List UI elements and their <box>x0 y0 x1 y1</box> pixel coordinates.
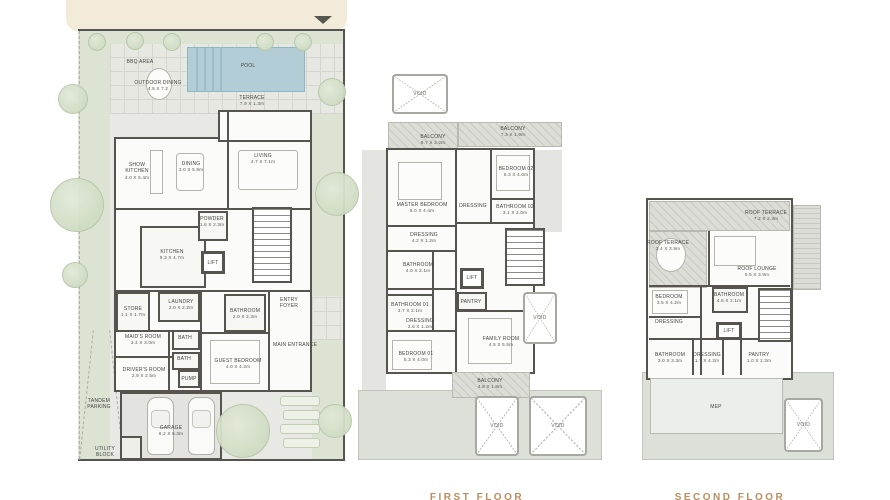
room-label: BATHROOM 013.7 X 2.1m <box>391 302 429 314</box>
tree <box>88 33 106 51</box>
room-label: GUEST BEDROOM4.0 X 4.2m <box>215 358 262 370</box>
room-label: UTILITY BLOCK <box>95 446 115 459</box>
tree <box>318 404 352 438</box>
room-label: PUMP <box>181 376 196 382</box>
pool-steps <box>196 48 222 91</box>
room-label: BATHROOM4.5 X 2.1m <box>714 292 744 304</box>
room-label: POOL <box>241 63 256 69</box>
room-label: LAUNDRY2.0 X 2.2m <box>168 299 193 311</box>
room-label: LIFT <box>723 328 734 334</box>
floor-plans-canvas: BBQ AREA OUTDOOR DINING4.5 X 7.2 POOL TE… <box>0 0 890 500</box>
room-label: BATH <box>178 335 192 341</box>
room-label: DRIVER'S ROOM2.9 X 2.5m <box>123 367 166 379</box>
room-label: FAMILY ROOM4.5 X 5.5m <box>483 336 519 348</box>
wall <box>388 294 434 296</box>
room-label: POWDER1.6 X 2.3m <box>200 216 224 228</box>
hedge <box>280 396 320 406</box>
wall <box>168 330 170 390</box>
wall <box>490 150 492 222</box>
tree <box>58 84 88 114</box>
wall <box>202 332 268 334</box>
side-slab-right <box>535 150 562 232</box>
void-box: VOID <box>523 292 557 344</box>
room-label: BALCONY6.7 X 3.2m <box>420 134 445 146</box>
void-box: VOID <box>392 74 448 114</box>
second-floor-caption: SECOND FLOOR <box>675 492 786 500</box>
void-label: VOID <box>490 423 503 429</box>
room-label: ROOF LOUNGE5.5 X 3.9m <box>737 266 776 278</box>
tree <box>216 404 270 458</box>
room-label: BALCONY7.3 X 1.9m <box>500 126 525 138</box>
room-label: BATHROOM2.0 X 2.3m <box>230 308 260 320</box>
void-label: VOID <box>797 422 810 428</box>
wall <box>388 288 456 290</box>
staircase <box>505 228 545 286</box>
tree <box>126 32 144 50</box>
room-label: DINING3.0 X 5.9m <box>179 161 203 173</box>
room-label: BATH <box>177 356 191 362</box>
room-label: TANDEM PARKING <box>87 398 111 411</box>
room-label: TERRACE7.9 X 1.3m <box>239 95 264 107</box>
pool <box>187 47 305 92</box>
wall <box>722 340 724 375</box>
room-label: PANTRY1.0 X 2.3m <box>747 352 771 364</box>
wall <box>388 225 456 227</box>
room-label: MEP <box>710 404 721 410</box>
room-label: OUTDOOR DINING4.5 X 7.2 <box>134 80 181 92</box>
wall <box>388 330 456 332</box>
tree <box>315 172 359 216</box>
tree <box>163 33 181 51</box>
plot-boundary-top <box>78 29 345 31</box>
wall <box>388 250 456 252</box>
void-box: VOID <box>475 396 519 456</box>
room-label: DRESSING <box>655 319 683 325</box>
balcony-right-strip <box>793 205 821 290</box>
living-wing <box>218 110 312 142</box>
void-label: VOID <box>551 423 564 429</box>
wall <box>649 316 700 318</box>
room-label: MAID'S ROOM3.4 X 3.0m <box>125 334 161 346</box>
room-label: MAIN ENTRANCE <box>273 342 317 348</box>
void-label: VOID <box>533 315 546 321</box>
staircase <box>252 207 292 283</box>
void-box: VOID <box>784 398 823 452</box>
room-label: DRESSING1.7 X 4.2m <box>693 352 721 364</box>
room-label: BATHROOM 023.1 X 2.0m <box>496 204 534 216</box>
staircase <box>758 288 792 342</box>
wall <box>457 222 535 224</box>
kitchen-island <box>150 150 163 194</box>
room-label: SHOW KITCHEN4.0 X 5.4m <box>125 162 149 180</box>
wall <box>492 198 535 200</box>
roof-lounge-sofa <box>714 236 756 266</box>
room-label: PANTRY <box>460 299 481 305</box>
room-label: STORE1.1 X 1.7m <box>121 306 145 318</box>
room-label: BEDROOM 025.3 X 4.0m <box>499 166 534 178</box>
room-label: LIVING4.7 X 7.1m <box>251 153 275 165</box>
tree <box>294 33 312 51</box>
wall <box>200 292 202 390</box>
room-label: LIFT <box>207 260 218 266</box>
room-label: KITCHEN5.3 X 4.7m <box>160 249 184 261</box>
site-header-band <box>66 0 347 31</box>
hedge <box>283 438 320 448</box>
room-label: DRESSING3.6 X 1.2m <box>406 318 434 330</box>
room-label: BEDROOM 015.3 X 4.0m <box>399 351 434 363</box>
hedge <box>280 424 320 434</box>
room-label: ROOF TERRACE7.2 X 2.3m <box>745 210 787 222</box>
entrance-porch <box>312 296 343 340</box>
room-label: MASTER BEDROOM6.0 X 4.4m <box>397 202 448 214</box>
room-label: BEDROOM3.5 X 4.2m <box>655 294 682 306</box>
wall <box>708 231 710 285</box>
tree <box>62 262 88 288</box>
void-box: VOID <box>529 396 587 456</box>
room-label: BBQ AREA <box>127 59 154 65</box>
wall <box>455 150 457 372</box>
down-triangle-marker-icon <box>314 16 332 24</box>
wall <box>227 112 229 210</box>
room-label: BALCONY4.8 X 1.8m <box>477 378 502 390</box>
room-label: BATHROOM4.0 X 2.1m <box>403 262 433 274</box>
room-label: DRESSING4.2 X 1.2m <box>410 232 438 244</box>
side-slab-left <box>362 150 386 390</box>
utility-block <box>120 436 142 460</box>
tree <box>256 33 274 51</box>
first-floor-caption: FIRST FLOOR <box>430 492 524 500</box>
room-label: ENTRY FOYER <box>280 297 298 310</box>
room-label: ROOF TERRACE3.4 X 3.9m <box>647 240 689 252</box>
room-label: LIFT <box>466 275 477 281</box>
tree <box>50 178 104 232</box>
tree <box>318 78 346 106</box>
void-label: VOID <box>413 91 426 97</box>
room-label: DRESSING <box>459 203 487 209</box>
wall <box>268 292 270 390</box>
wall <box>740 340 742 375</box>
car-windshield <box>192 410 211 428</box>
room-label: GARAGE6.2 X 6.3m <box>159 425 183 437</box>
car <box>188 397 215 455</box>
room-label: BATHROOM3.0 X 3.3m <box>655 352 685 364</box>
hedge <box>283 410 320 420</box>
master-bed <box>398 162 442 200</box>
